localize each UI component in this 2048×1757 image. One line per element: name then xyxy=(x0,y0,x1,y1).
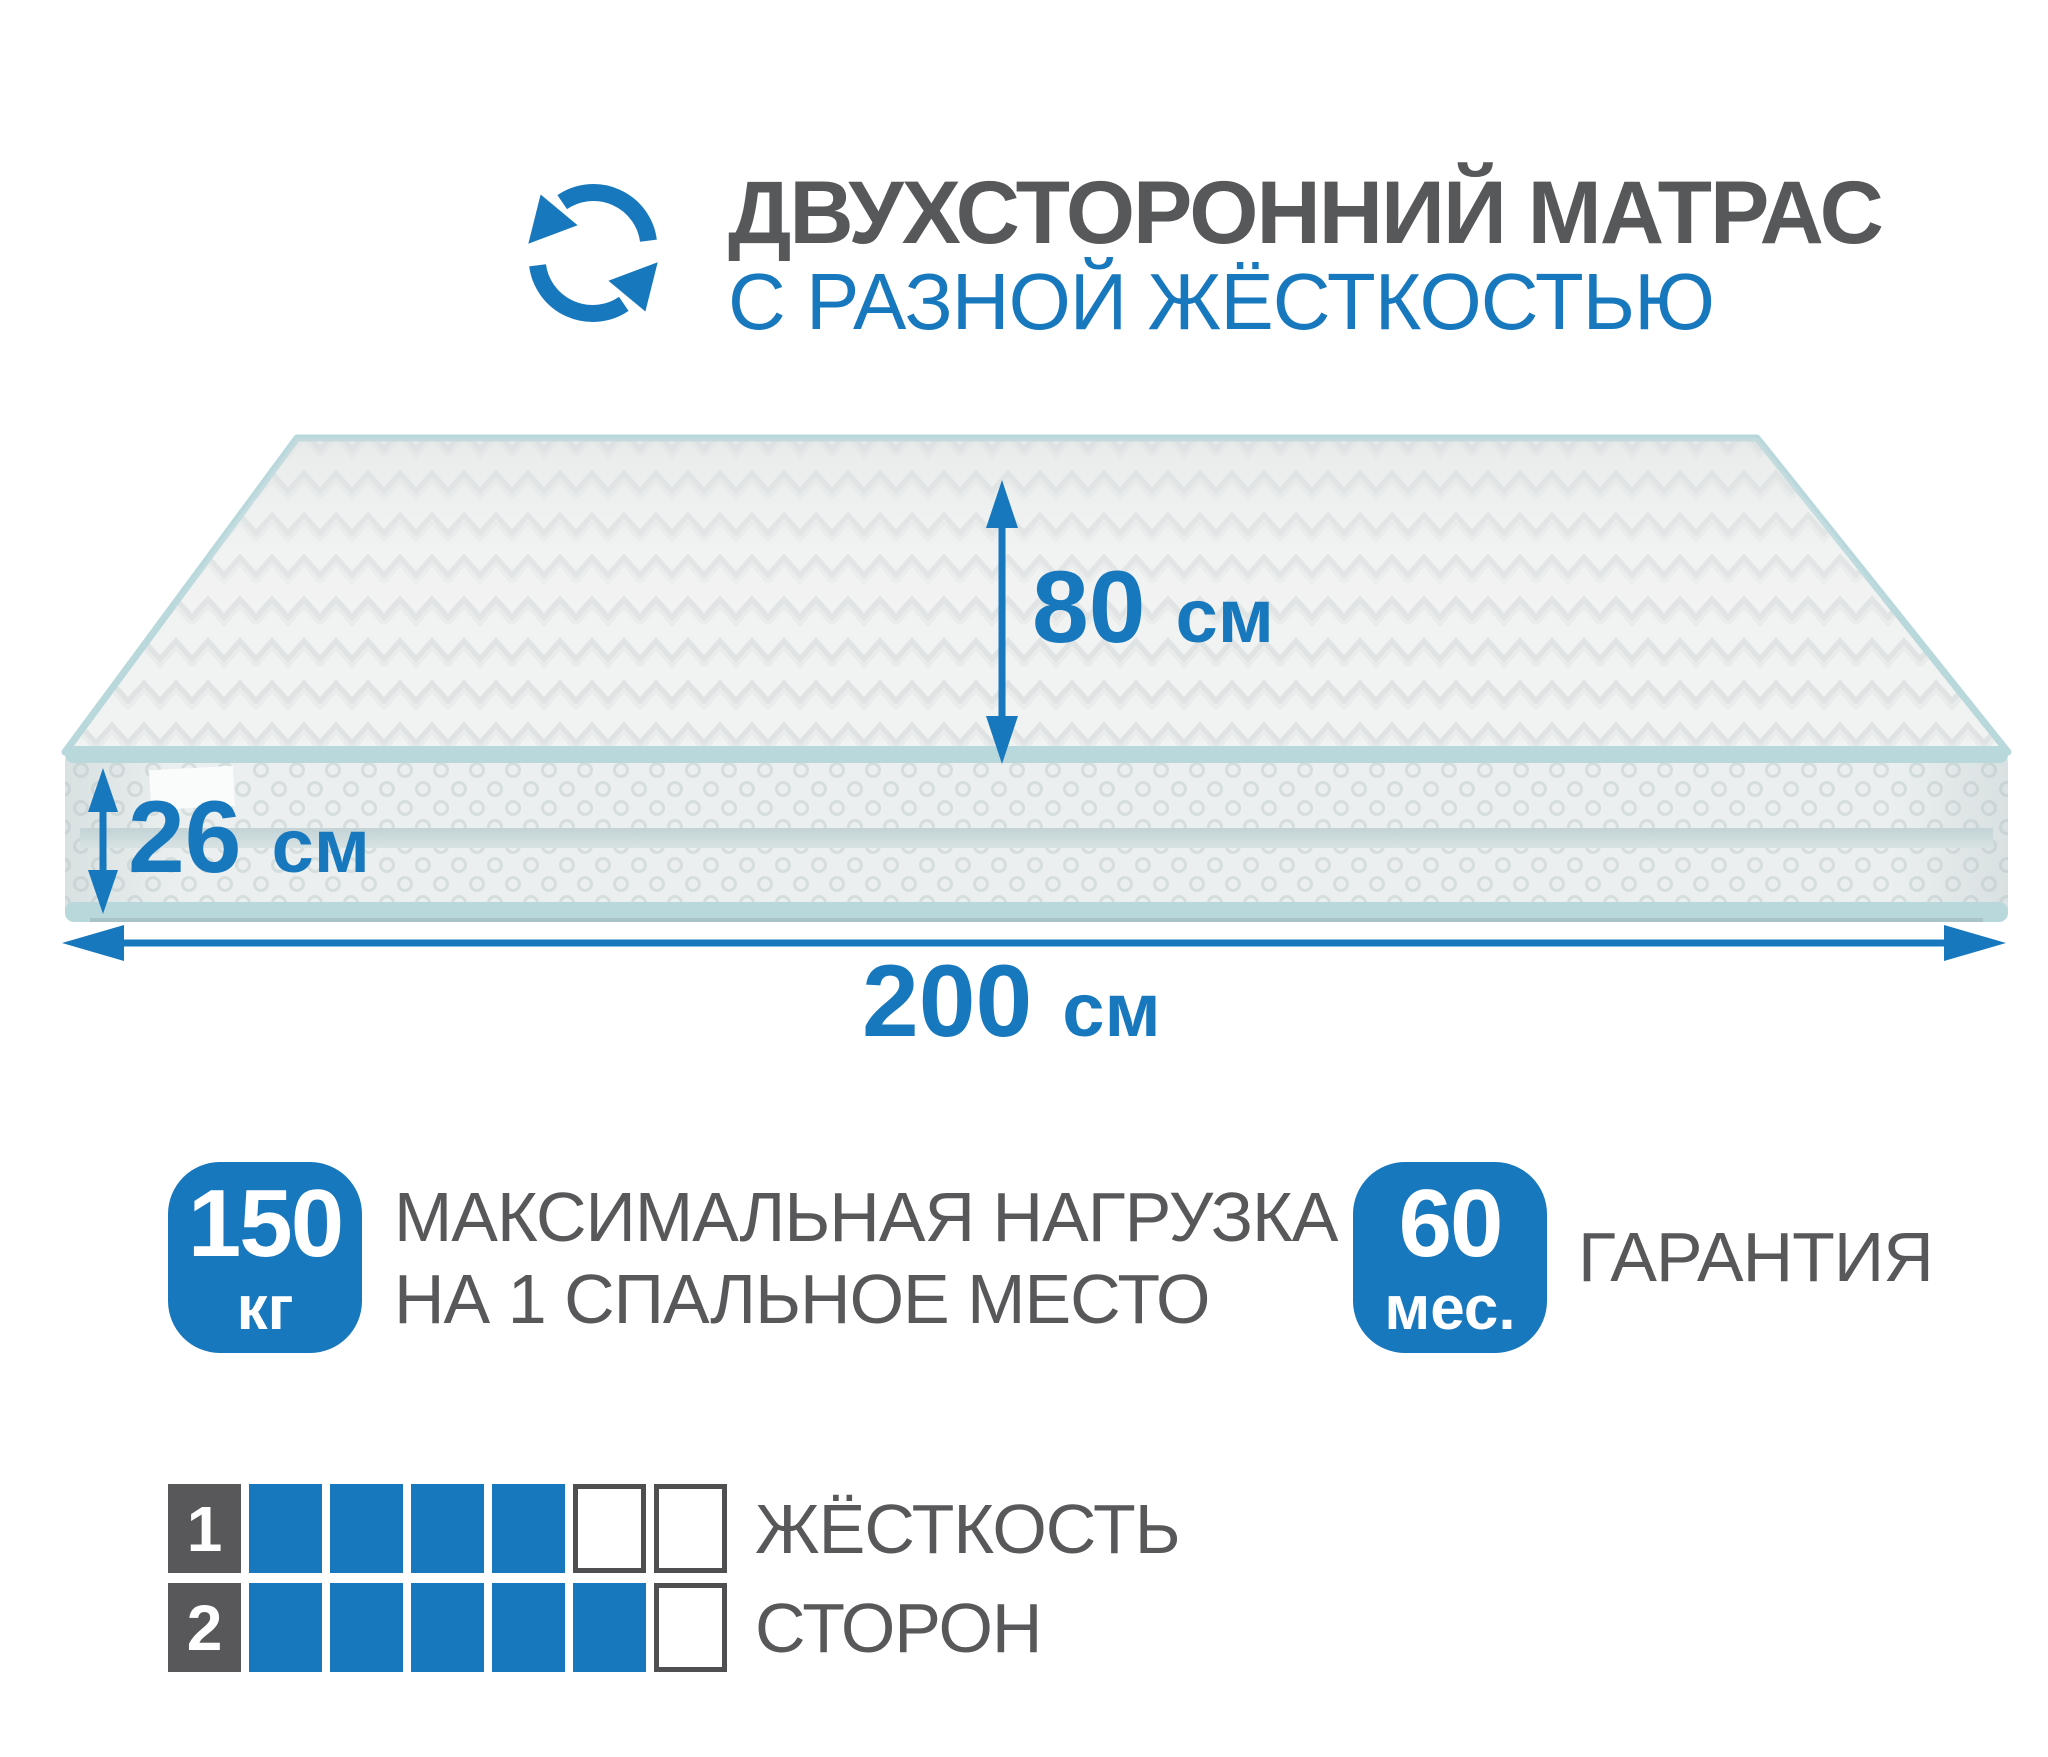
warranty-unit: мес. xyxy=(1384,1278,1515,1340)
max-load-caption: МАКСИМАЛЬНАЯ НАГРУЗКА НА 1 СПАЛЬНОЕ МЕСТ… xyxy=(394,1176,1337,1340)
dimension-value: 200 xyxy=(862,950,1032,1052)
dimension-value: 26 xyxy=(128,786,241,888)
dimension-label-thickness: 26 см xyxy=(128,786,370,888)
firmness-cell-filled xyxy=(492,1583,565,1672)
side-number-badge: 1 xyxy=(168,1484,241,1573)
dimension-unit: см xyxy=(1062,973,1161,1049)
firmness-cell-filled xyxy=(330,1583,403,1672)
max-load-caption-line1: МАКСИМАЛЬНАЯ НАГРУЗКА xyxy=(394,1176,1337,1258)
dimension-unit: см xyxy=(1175,579,1274,655)
firmness-cells-side-2 xyxy=(249,1583,727,1672)
firmness-cell-filled xyxy=(573,1583,646,1672)
firmness-cell-filled xyxy=(330,1484,403,1573)
firmness-cell-empty xyxy=(654,1583,727,1672)
dimension-label-length: 200 см xyxy=(862,950,1161,1052)
firmness-cell-filled xyxy=(411,1583,484,1672)
firmness-cells-side-1 xyxy=(249,1484,727,1573)
dimension-label-sleep-width: 80 см xyxy=(1032,556,1274,658)
max-load-caption-line2: НА 1 СПАЛЬНОЕ МЕСТО xyxy=(394,1258,1337,1340)
warranty-badge: 60 мес. xyxy=(1353,1162,1547,1353)
firmness-cell-empty xyxy=(573,1484,646,1573)
max-load-badge: 150 кг xyxy=(168,1162,362,1353)
max-load-value: 150 xyxy=(188,1176,342,1272)
warranty-caption: ГАРАНТИЯ xyxy=(1578,1222,1933,1292)
dimension-unit: см xyxy=(271,809,370,885)
max-load-unit: кг xyxy=(237,1278,294,1340)
firmness-cell-filled xyxy=(249,1484,322,1573)
firmness-cell-filled xyxy=(492,1484,565,1573)
firmness-row-side-1: 1 ЖЁСТКОСТЬ xyxy=(168,1484,1180,1573)
firmness-scale: 1 ЖЁСТКОСТЬ 2 СТОРОН xyxy=(168,1484,1180,1672)
firmness-row-side-2: 2 СТОРОН xyxy=(168,1583,1180,1672)
side-number-badge: 2 xyxy=(168,1583,241,1672)
firmness-cell-empty xyxy=(654,1484,727,1573)
firmness-cell-filled xyxy=(249,1583,322,1672)
warranty-value: 60 xyxy=(1399,1176,1502,1272)
dimension-value: 80 xyxy=(1032,556,1145,658)
firmness-caption-line2: СТОРОН xyxy=(755,1593,1041,1663)
mattress-infographic-poster: ДВУХСТОРОННИЙ МАТРАС С РАЗНОЙ ЖЁСТКОСТЬЮ xyxy=(0,0,2048,1757)
firmness-cell-filled xyxy=(411,1484,484,1573)
firmness-caption-line1: ЖЁСТКОСТЬ xyxy=(755,1494,1180,1564)
